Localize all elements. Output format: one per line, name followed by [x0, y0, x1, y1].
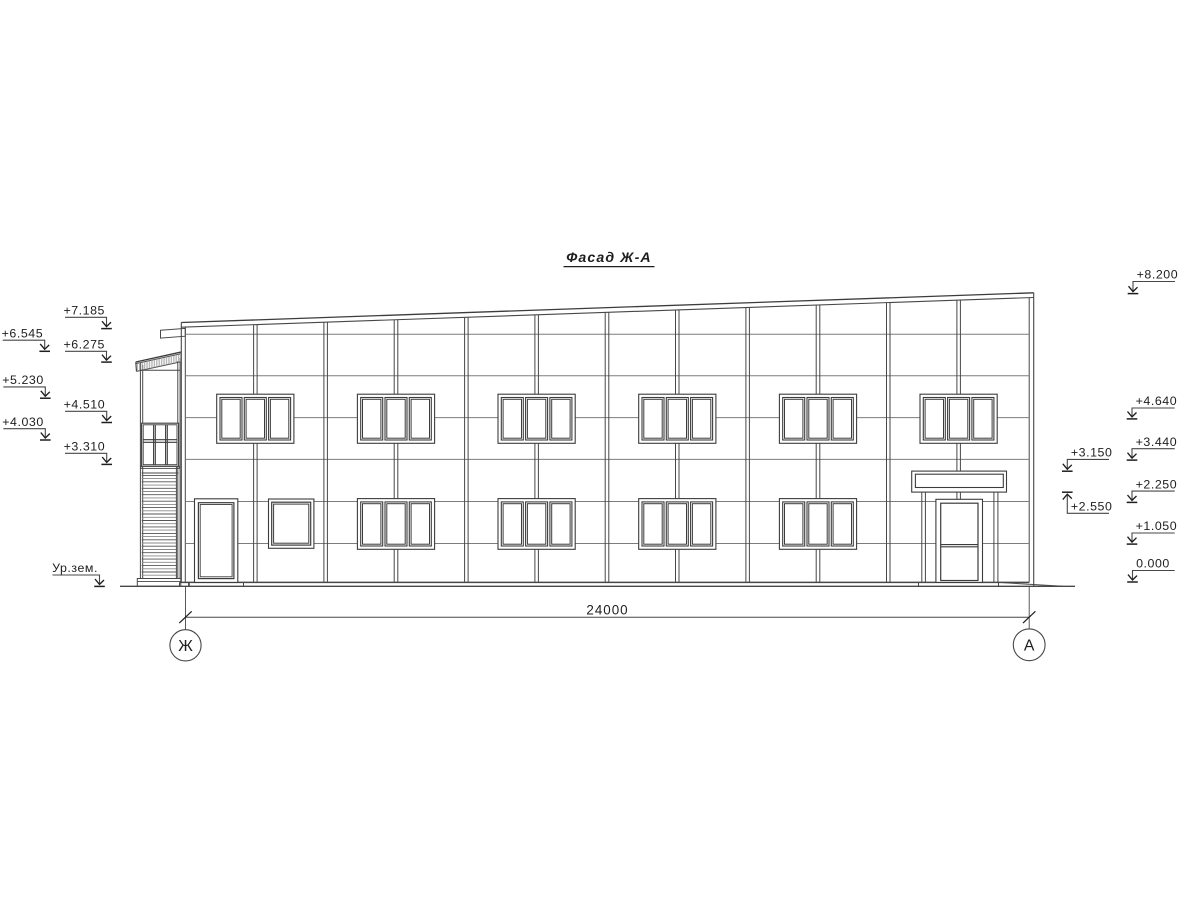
svg-text:Фасад Ж-А: Фасад Ж-А	[566, 250, 652, 266]
svg-text:24000: 24000	[586, 602, 628, 617]
svg-text:+8.200: +8.200	[1137, 268, 1179, 282]
svg-text:+6.545: +6.545	[2, 326, 44, 340]
svg-text:0.000: 0.000	[1136, 557, 1170, 571]
svg-text:+7.185: +7.185	[63, 304, 105, 318]
svg-text:+4.510: +4.510	[64, 398, 106, 412]
svg-text:+4.030: +4.030	[2, 415, 44, 429]
svg-text:+1.050: +1.050	[1136, 519, 1178, 533]
svg-text:А: А	[1024, 637, 1035, 654]
svg-text:+3.150: +3.150	[1071, 446, 1113, 460]
svg-text:Ур.зем.: Ур.зем.	[52, 561, 98, 575]
svg-text:+3.440: +3.440	[1136, 435, 1178, 449]
svg-text:+6.275: +6.275	[63, 338, 105, 352]
svg-text:+2.550: +2.550	[1071, 500, 1113, 514]
svg-text:Ж: Ж	[178, 638, 193, 655]
svg-text:+3.310: +3.310	[64, 440, 106, 454]
svg-text:+2.250: +2.250	[1136, 477, 1178, 491]
svg-text:+5.230: +5.230	[2, 373, 44, 387]
svg-text:+4.640: +4.640	[1136, 394, 1178, 408]
